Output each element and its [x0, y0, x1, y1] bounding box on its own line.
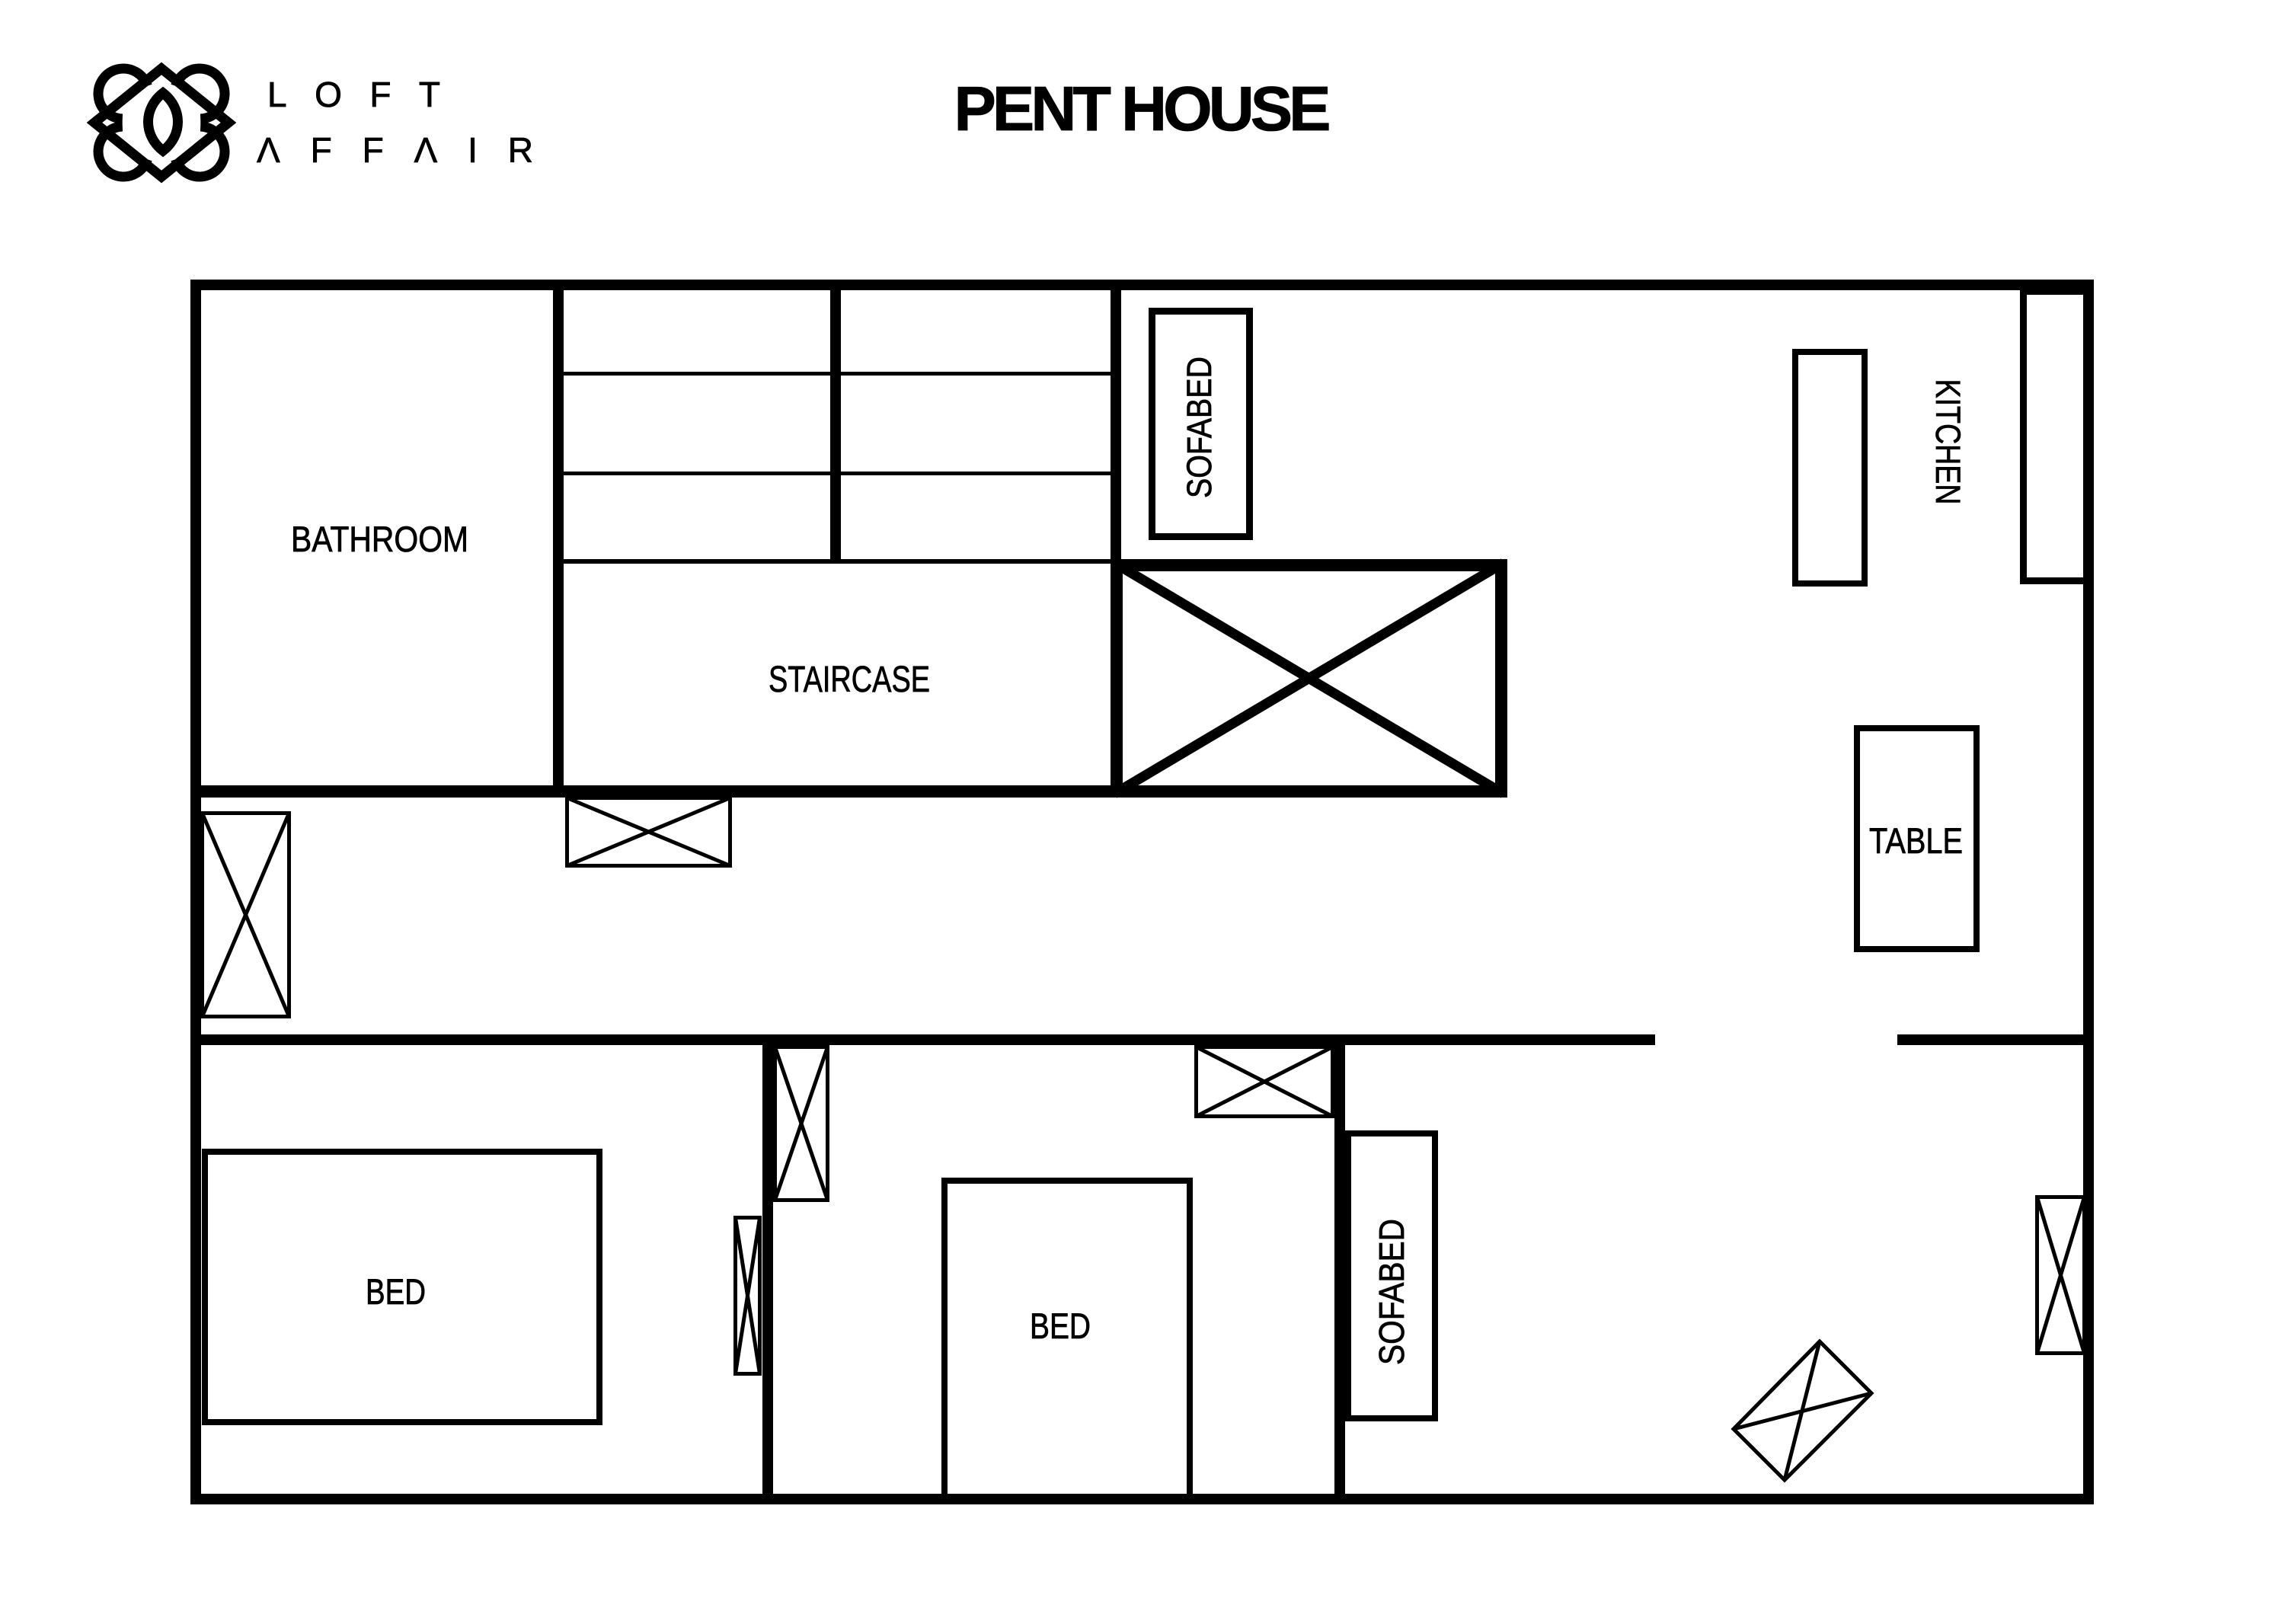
svg-text:BED: BED — [1030, 1306, 1091, 1346]
svg-text:KITCHEN: KITCHEN — [1929, 379, 1967, 505]
svg-text:BED: BED — [366, 1271, 426, 1312]
svg-text:TABLE: TABLE — [1869, 820, 1963, 861]
svg-text:PENT HOUSE: PENT HOUSE — [954, 73, 1331, 144]
svg-text:SOFABED: SOFABED — [1372, 1219, 1411, 1365]
svg-text:BATHROOM: BATHROOM — [291, 519, 468, 559]
svg-text:STAIRCASE: STAIRCASE — [769, 660, 930, 700]
svg-text:SOFABED: SOFABED — [1180, 356, 1219, 498]
